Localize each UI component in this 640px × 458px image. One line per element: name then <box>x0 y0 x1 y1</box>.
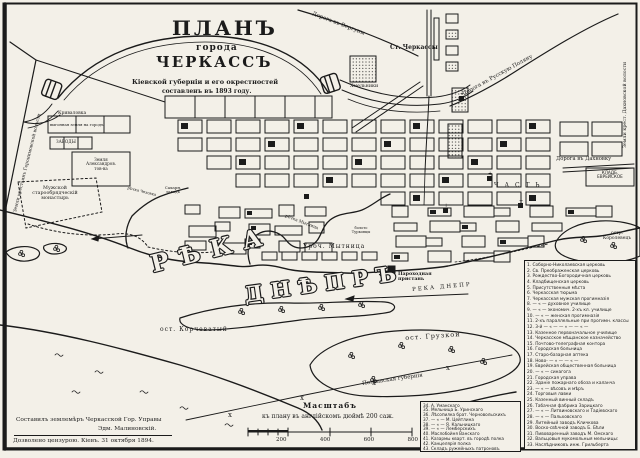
tree-mark <box>20 250 23 253</box>
city-block <box>592 122 622 136</box>
city-block <box>322 252 337 260</box>
island-korolevets <box>555 221 640 263</box>
city-block <box>430 210 436 214</box>
city-block <box>496 221 519 232</box>
city-block <box>207 120 231 133</box>
city-block <box>596 206 612 217</box>
city-block <box>236 120 260 133</box>
tree-mark <box>55 245 58 248</box>
city-block <box>529 195 536 201</box>
city-block <box>532 223 562 231</box>
city-block <box>294 138 318 151</box>
korolevets-label: остр. Королевецъ <box>598 232 636 241</box>
pier-label: Пароходная пристань <box>398 272 432 282</box>
svg-text:x: x <box>446 364 450 372</box>
tree-mark <box>282 310 285 313</box>
city-block <box>352 174 376 187</box>
uroch-mytnitsa-label: Уроч. Мытница <box>303 244 365 250</box>
city-block <box>426 238 442 246</box>
city-block <box>530 206 553 217</box>
city-block <box>207 156 231 169</box>
city-block <box>219 207 240 218</box>
city-block <box>428 251 451 262</box>
sugar-factory-label: Сахарн. заводъ <box>160 186 186 194</box>
city-block <box>381 120 405 133</box>
city-block <box>185 205 200 214</box>
tree-mark <box>400 342 403 345</box>
city-block <box>352 138 376 151</box>
list-item: 200 <box>276 437 287 443</box>
city-block <box>430 221 460 232</box>
city-block <box>265 156 289 169</box>
city-block <box>560 142 588 156</box>
city-block <box>526 138 550 151</box>
tree-mark <box>612 242 615 245</box>
city-block <box>355 159 362 165</box>
scale-bar <box>248 428 412 436</box>
krivalovka-label: Криваловка <box>58 112 86 117</box>
map-title-cherkassy: ЧЕРКАССЪ <box>156 55 273 71</box>
khmelniki-plot <box>350 56 376 82</box>
tree-mark <box>450 346 453 349</box>
svg-text:x: x <box>228 411 232 419</box>
west-fields <box>5 42 212 253</box>
list-item: 14. Черкасское мѣщанское казначейство <box>527 336 633 342</box>
chast-label: Ч А С Т Ь <box>494 183 541 189</box>
city-block <box>592 142 622 156</box>
tree-mark <box>614 246 617 249</box>
dakhnovka-volost-label: Земли крест. Дахновской волости <box>623 62 628 148</box>
vygon-label: выгонная земля на городъ <box>50 123 103 127</box>
city-block <box>279 241 300 252</box>
tree-mark <box>362 305 365 308</box>
city-block <box>494 208 510 216</box>
city-block <box>529 123 536 129</box>
tree-mark <box>320 304 323 307</box>
city-block <box>468 120 492 133</box>
church-marks: ++ ++ <box>304 91 523 213</box>
city-block <box>526 156 550 169</box>
city-block <box>239 159 246 165</box>
tree-mark <box>350 352 353 355</box>
city-block <box>323 138 347 151</box>
tree-mark <box>280 306 283 309</box>
city-block <box>410 156 434 169</box>
city-block <box>323 120 347 133</box>
city-block <box>236 138 260 151</box>
city-block <box>294 156 318 169</box>
map-title-plan: ПЛАНЪ <box>172 18 278 39</box>
scale-caption: къ плану въ англійскомъ дюймѣ 200 саж. <box>262 414 394 420</box>
city-block <box>439 192 463 205</box>
city-block <box>413 195 420 201</box>
credits-line2: Эдм. Малиновскій. <box>98 426 156 432</box>
alexandrov-label: Земля Александров. тов-ва <box>76 158 126 171</box>
city-block <box>265 174 289 187</box>
tree-mark <box>352 356 355 359</box>
city-block <box>362 252 377 260</box>
boloto-label: болото Турковцы <box>346 227 376 235</box>
scale-tick-numbers: 200400600800 <box>276 437 418 443</box>
city-block <box>262 252 277 260</box>
city-block <box>497 120 521 133</box>
city-block <box>394 255 400 259</box>
city-block <box>302 252 317 260</box>
city-block <box>381 156 405 169</box>
tree-mark <box>22 254 25 257</box>
city-block <box>384 141 391 147</box>
tree-mark <box>484 362 487 365</box>
city-block <box>265 120 289 133</box>
map-subtitle-1: Кіевской губерніи и его окрестностей <box>132 79 278 86</box>
road-dakhnovka-label: Дорога въ Дахновку <box>556 157 611 162</box>
credits-rule <box>14 435 172 436</box>
city-block <box>568 210 574 214</box>
city-block <box>464 206 494 217</box>
city-block <box>394 223 417 231</box>
list-item: 400 <box>320 437 331 443</box>
city-block <box>282 252 297 260</box>
tree-mark <box>584 240 587 243</box>
list-item: 600 <box>364 437 375 443</box>
credits-line1: Составилъ землемѣръ Черкасской Гор. Упра… <box>16 417 161 423</box>
list-item: 33. Наслѣдниковъ инж. Грильберта <box>527 443 633 449</box>
city-block <box>500 141 507 147</box>
city-block <box>323 156 347 169</box>
cemetery-label: КЛАДБ. ЕВРЕЙСКОЕ <box>588 171 632 180</box>
map-page: xx xx ++ ++ <box>0 0 640 458</box>
city-block <box>178 138 202 151</box>
korchevaty-label: ост. Корчеватый <box>160 327 228 333</box>
vygon-strip <box>165 96 332 118</box>
city-block <box>462 236 485 247</box>
city-block <box>297 123 304 129</box>
city-block <box>247 211 252 215</box>
city-block <box>326 177 333 183</box>
legend-main-box: 1. Соборно-Николаевская церковь2. Св. Пр… <box>524 260 636 450</box>
city-block <box>236 174 260 187</box>
city-block <box>471 159 478 165</box>
city-block <box>468 192 492 205</box>
city-block <box>410 138 434 151</box>
city-block <box>207 138 231 151</box>
tree-mark <box>242 312 245 315</box>
city-block <box>497 156 521 169</box>
zavody-label: ЗАВОДЫ <box>56 140 76 144</box>
city-block <box>396 236 426 247</box>
city-block <box>497 192 521 205</box>
city-block <box>413 123 420 129</box>
city-block <box>392 206 408 217</box>
list-item: 43. Складъ ружейныхъ патроновъ <box>423 447 518 452</box>
tree-mark <box>240 308 243 311</box>
list-item: 800 <box>407 437 418 443</box>
monastery-label: Мужской старообрядческій монастырь <box>22 186 88 201</box>
map-subtitle-2: составленъ въ 1893 году. <box>162 89 251 95</box>
city-block <box>181 123 188 129</box>
tree-mark <box>322 308 325 311</box>
city-block <box>268 141 275 147</box>
scale-title: Масштабъ <box>303 402 357 410</box>
city-block <box>500 240 506 244</box>
city-block <box>410 174 434 187</box>
city-block <box>294 174 318 187</box>
legend-extra-box: 34. А. Уманскаго35. Мельница Б. Уринскаг… <box>420 401 521 452</box>
city-block <box>442 177 449 183</box>
city-block <box>342 252 357 260</box>
credits-line3: Дозволено цензурою. Кіевъ. 31 октября 18… <box>13 438 154 444</box>
city-block <box>381 192 405 205</box>
city-block <box>560 122 588 136</box>
tree-mark <box>57 249 60 252</box>
city-block <box>468 138 492 151</box>
station-label: Ст. Черкассы <box>390 45 438 51</box>
city-block <box>462 225 468 229</box>
tree-mark <box>402 346 405 349</box>
tree-mark <box>452 350 455 353</box>
khmelniki-label: Хмельники <box>350 84 378 89</box>
city-block <box>381 174 405 187</box>
city-block <box>305 207 326 216</box>
